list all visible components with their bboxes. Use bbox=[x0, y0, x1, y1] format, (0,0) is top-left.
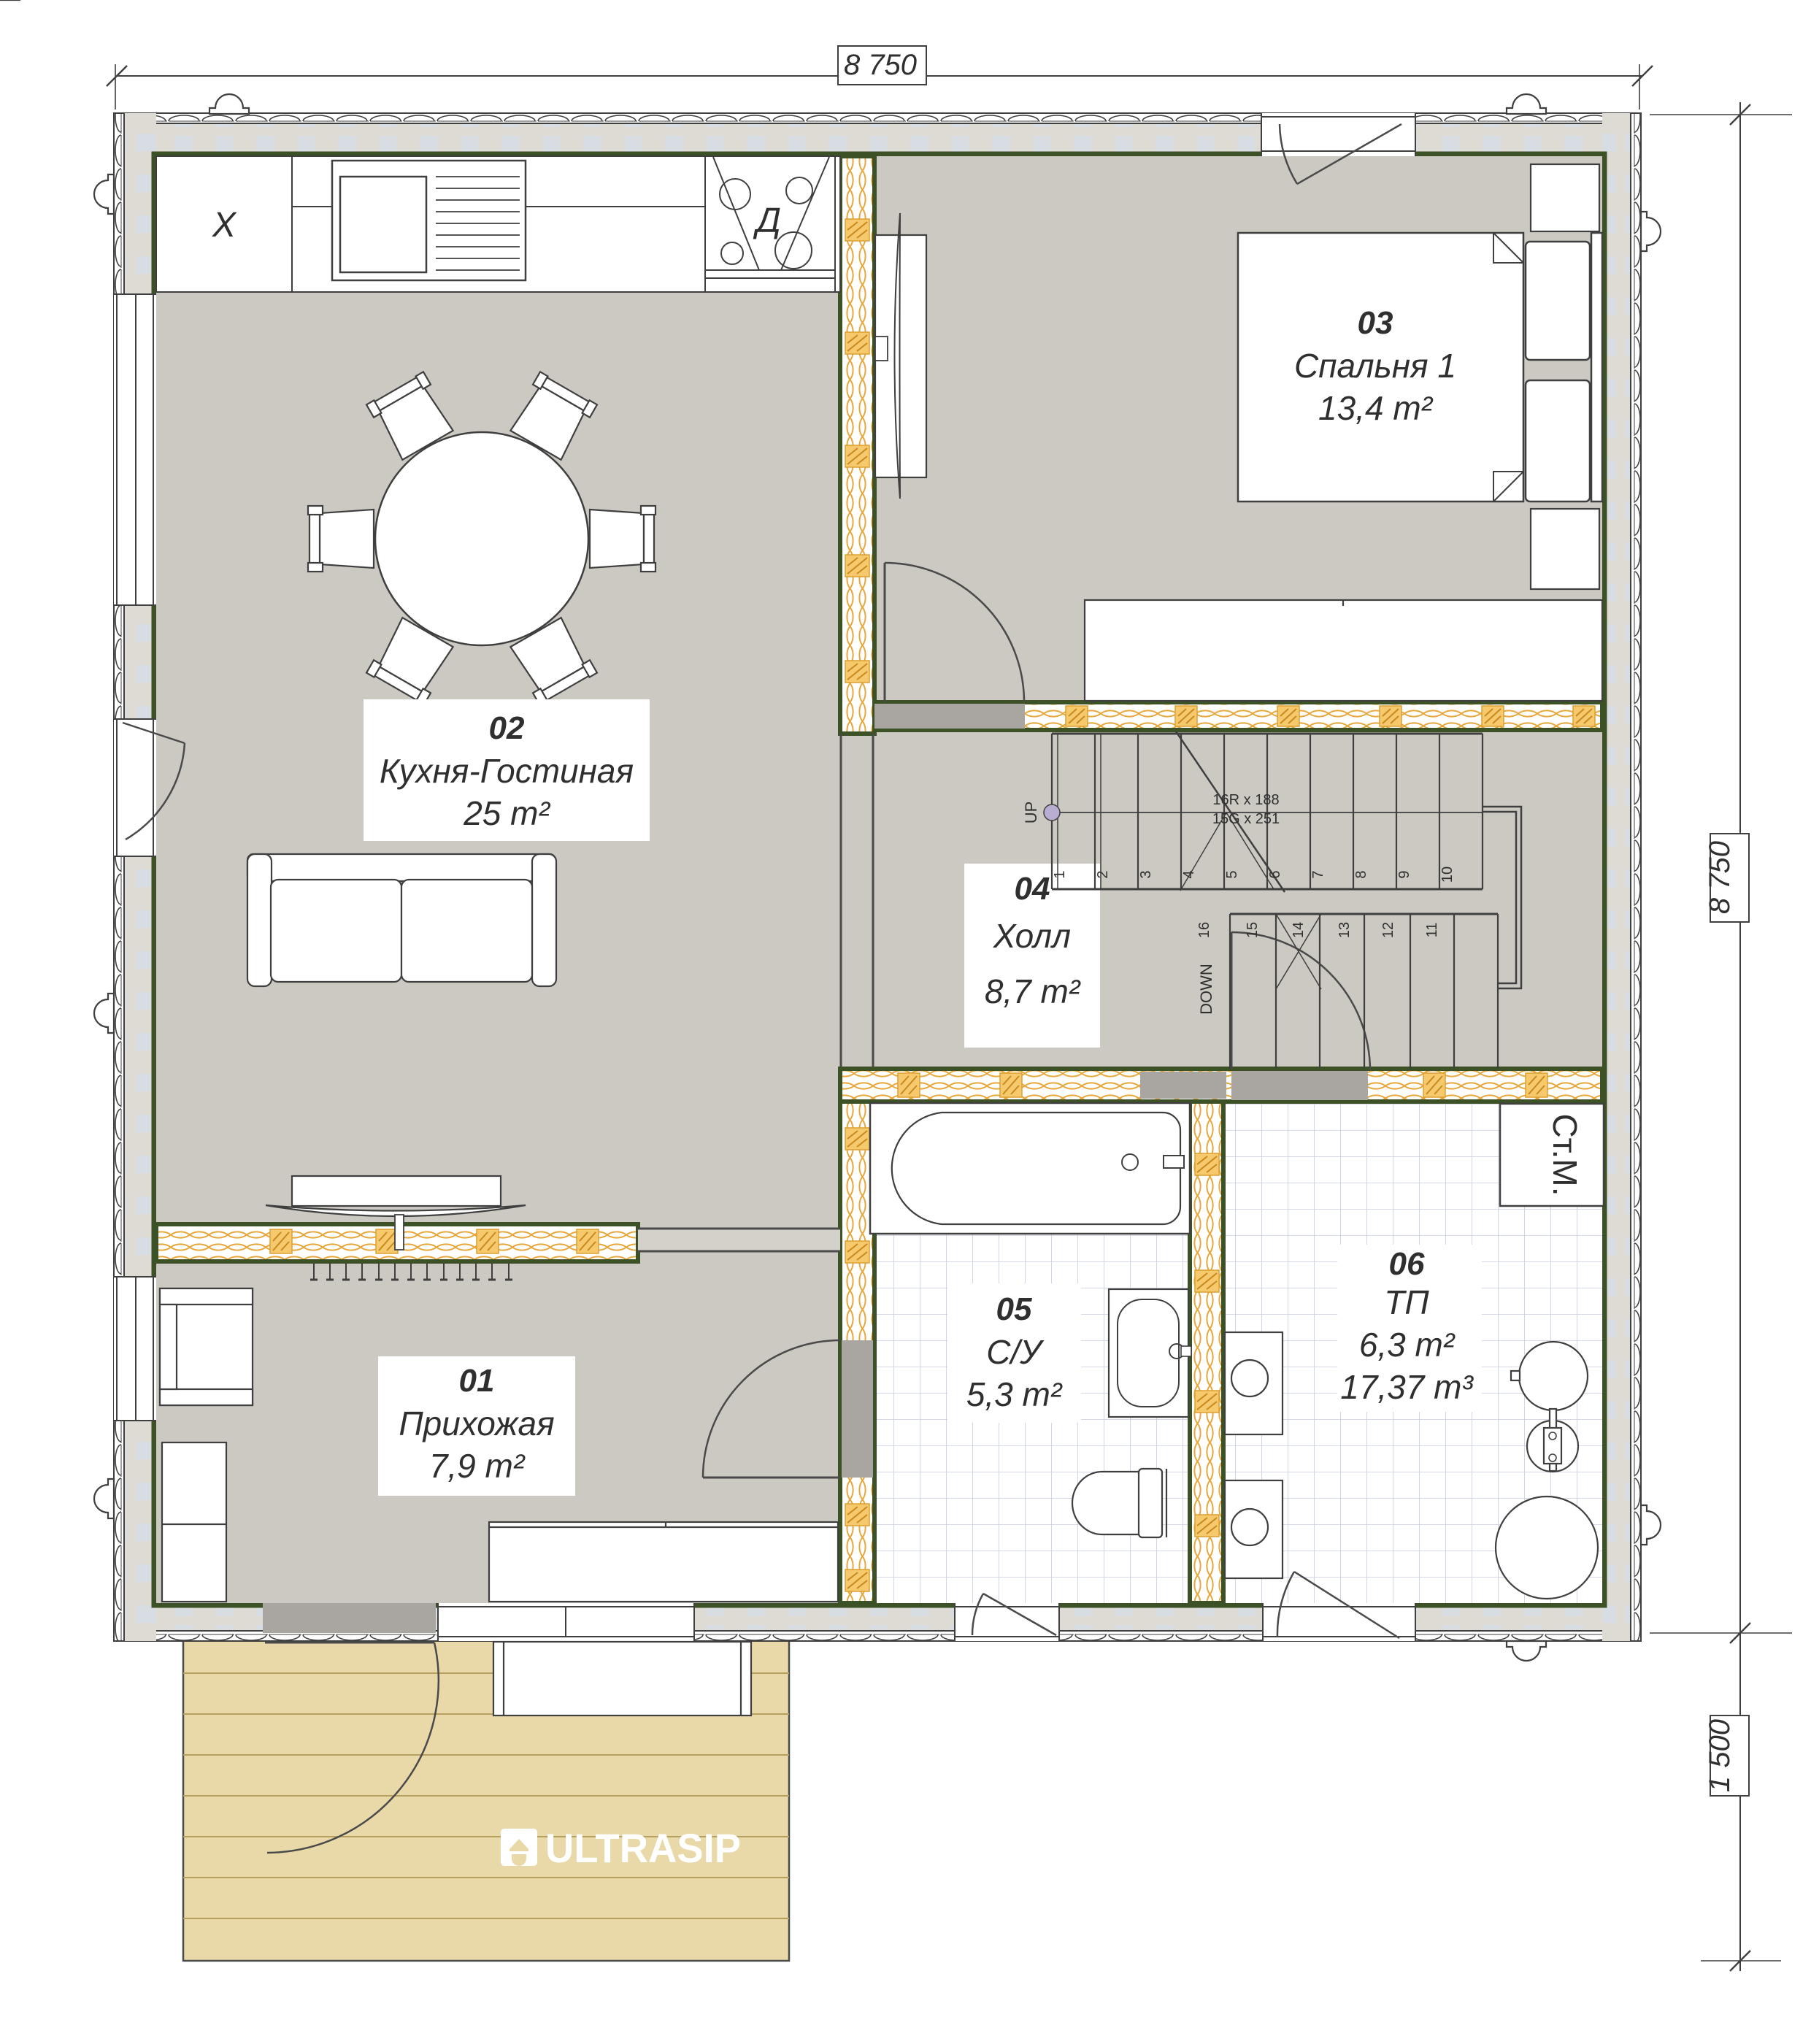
svg-text:5,3 m²: 5,3 m² bbox=[966, 1375, 1063, 1413]
svg-text:6: 6 bbox=[1267, 870, 1283, 878]
svg-text:10: 10 bbox=[1439, 867, 1456, 883]
svg-text:8 750: 8 750 bbox=[1704, 841, 1736, 914]
svg-text:4: 4 bbox=[1181, 870, 1197, 878]
svg-text:02: 02 bbox=[489, 710, 525, 746]
svg-text:06: 06 bbox=[1389, 1246, 1425, 1282]
svg-text:ULTRASIP: ULTRASIP bbox=[545, 1825, 741, 1871]
svg-text:2: 2 bbox=[1095, 870, 1111, 878]
svg-text:16R x 188: 16R x 188 bbox=[1212, 792, 1279, 808]
svg-text:DOWN: DOWN bbox=[1197, 964, 1215, 1015]
svg-text:1 500: 1 500 bbox=[1704, 1719, 1736, 1792]
svg-text:Д: Д bbox=[753, 201, 781, 240]
svg-text:15G x 251: 15G x 251 bbox=[1212, 811, 1280, 827]
svg-text:16: 16 bbox=[1196, 922, 1212, 938]
svg-text:7: 7 bbox=[1310, 870, 1326, 878]
svg-text:8,7 m²: 8,7 m² bbox=[985, 972, 1081, 1010]
svg-text:UP: UP bbox=[1022, 802, 1040, 824]
svg-text:15: 15 bbox=[1245, 922, 1261, 938]
svg-text:01: 01 bbox=[459, 1363, 495, 1399]
svg-text:1: 1 bbox=[1052, 870, 1068, 878]
svg-text:11: 11 bbox=[1424, 923, 1440, 938]
svg-text:X: X bbox=[212, 206, 237, 245]
svg-text:6,3 m²: 6,3 m² bbox=[1359, 1326, 1456, 1364]
svg-text:05: 05 bbox=[996, 1291, 1032, 1327]
svg-text:13: 13 bbox=[1337, 922, 1353, 938]
svg-text:12: 12 bbox=[1380, 922, 1396, 938]
svg-text:ТП: ТП bbox=[1384, 1283, 1429, 1321]
svg-text:8 750: 8 750 bbox=[844, 49, 917, 81]
svg-text:Спальня 1: Спальня 1 bbox=[1294, 347, 1456, 385]
svg-text:17,37 m³: 17,37 m³ bbox=[1340, 1368, 1474, 1406]
svg-text:25 m²: 25 m² bbox=[463, 794, 550, 832]
svg-text:7,9 m²: 7,9 m² bbox=[429, 1447, 526, 1485]
svg-text:С/У: С/У bbox=[986, 1333, 1045, 1371]
svg-text:03: 03 bbox=[1358, 305, 1393, 341]
svg-text:Ст.М.: Ст.М. bbox=[1546, 1113, 1584, 1196]
svg-text:8: 8 bbox=[1353, 870, 1369, 878]
svg-text:9: 9 bbox=[1396, 870, 1412, 878]
svg-text:Холл: Холл bbox=[993, 917, 1071, 955]
svg-text:Кухня-Гостиная: Кухня-Гостиная bbox=[380, 752, 634, 790]
svg-text:04: 04 bbox=[1015, 871, 1050, 907]
svg-text:5: 5 bbox=[1224, 870, 1240, 878]
svg-text:3: 3 bbox=[1138, 870, 1154, 878]
svg-text:Прихожая: Прихожая bbox=[399, 1405, 554, 1442]
svg-text:13,4 m²: 13,4 m² bbox=[1318, 389, 1434, 427]
svg-text:14: 14 bbox=[1291, 922, 1307, 938]
